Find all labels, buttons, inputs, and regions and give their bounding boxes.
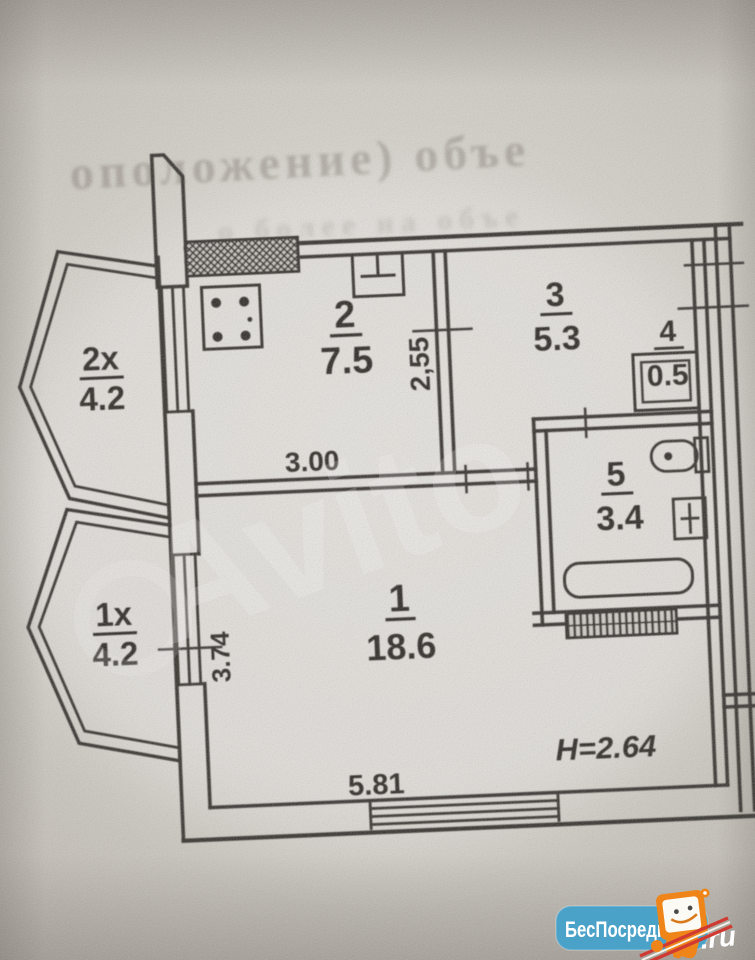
floorplan-canvas: оположение) объе о более на объе: [0, 0, 755, 960]
mascot-antenna-dot: [703, 891, 707, 895]
grain-overlay: [0, 0, 755, 960]
floorplan-photo: оположение) объе о более на объе: [0, 0, 755, 960]
mascot-paw: [651, 940, 663, 952]
